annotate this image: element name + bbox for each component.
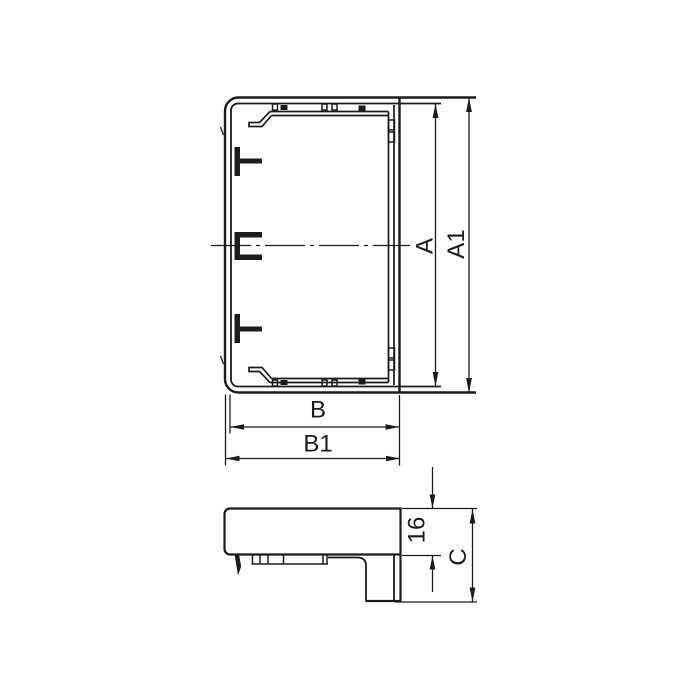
side-foot-inner-contour — [328, 558, 366, 602]
dim-A-label: A — [412, 238, 439, 254]
cover-hook-top — [249, 112, 272, 127]
dim-A1-label: A1 — [443, 229, 470, 258]
cover-bottom-rail — [270, 379, 389, 383]
side-left-hook — [235, 556, 241, 576]
dim-16-arrow-up — [430, 556, 436, 570]
side-latch-strip — [252, 556, 329, 565]
side-view-dimensions: 16 C — [395, 467, 478, 602]
dim-B-arrow-left — [230, 424, 244, 430]
dim-B-arrow-right — [386, 424, 400, 430]
side-cover-body — [225, 509, 401, 555]
dim-C-arrow-down — [470, 588, 476, 603]
dim-A1-arrow-down — [466, 378, 472, 393]
technical-drawing-canvas: A A1 B B1 — [0, 0, 700, 700]
dim-16-arrow-down — [430, 495, 436, 509]
dim-B1-label: B1 — [303, 431, 332, 458]
dim-A-arrow-down — [433, 372, 439, 387]
dim-A1-arrow-up — [466, 98, 472, 113]
mounting-stud-bottom — [235, 314, 263, 343]
dim-A-arrow-up — [433, 104, 439, 119]
dim-16-label: 16 — [404, 517, 431, 544]
dim-B1-arrow-left — [226, 456, 240, 462]
trunking-device-box-drawing: A A1 B B1 — [0, 0, 700, 700]
top-rail-latch-tabs — [273, 104, 366, 111]
dim-B-label: B — [310, 397, 326, 424]
front-view-dimensions: A A1 B B1 — [226, 98, 472, 466]
dim-B1-arrow-right — [386, 456, 400, 462]
cover-top-rail — [270, 112, 389, 116]
dim-C-arrow-up — [470, 509, 476, 524]
side-view — [225, 508, 402, 603]
mounting-stud-top — [235, 147, 263, 176]
dim-C-label: C — [445, 548, 472, 565]
cover-hook-bottom — [249, 368, 272, 383]
